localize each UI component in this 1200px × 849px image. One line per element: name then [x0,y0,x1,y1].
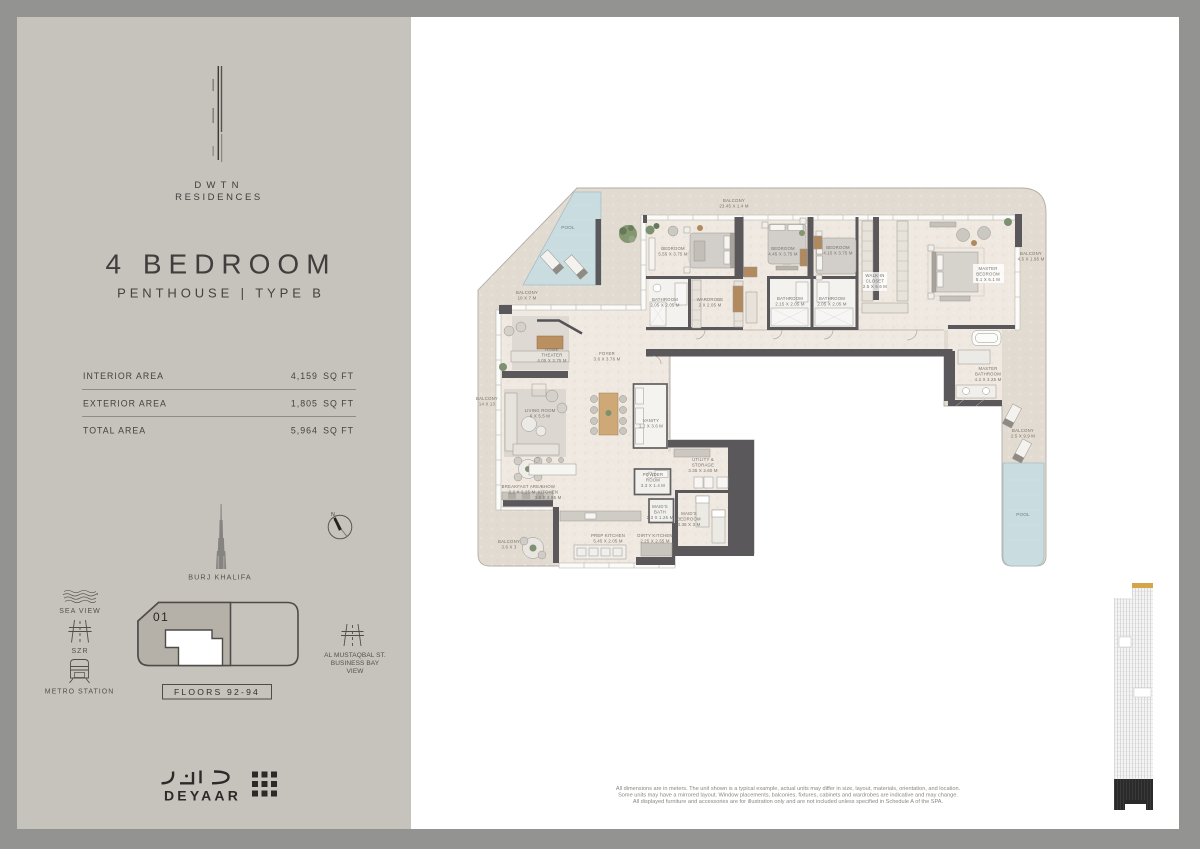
svg-text:ROOM: ROOM [646,478,660,483]
svg-text:SHOW: SHOW [541,484,556,489]
svg-text:2.5 X 6.6 M: 2.5 X 6.6 M [863,284,887,289]
svg-text:BALCONY: BALCONY [516,290,538,295]
svg-text:3.6 X 3: 3.6 X 3 [501,545,516,550]
svg-text:WALK-IN: WALK-IN [865,273,884,278]
svg-text:6 X 5.5 M: 6 X 5.5 M [530,414,550,419]
svg-text:Some units may have a mirrored: Some units may have a mirrored layout. W… [618,793,958,799]
svg-text:INTERIOR AREA: INTERIOR AREA [83,371,164,381]
svg-text:KITCHEN: KITCHEN [538,490,558,495]
svg-text:23.45 X 1.4 M: 23.45 X 1.4 M [719,204,749,209]
svg-text:PENTHOUSE | TYPE B: PENTHOUSE | TYPE B [117,286,325,301]
svg-text:FLOORS 92-94: FLOORS 92-94 [174,687,260,697]
svg-text:2.15 X 2.05 M: 2.15 X 2.05 M [775,302,805,307]
svg-text:BEDROOM: BEDROOM [677,517,701,522]
svg-text:BEDROOM: BEDROOM [661,246,685,251]
svg-text:STORAGE: STORAGE [692,463,714,468]
svg-text:POWDER: POWDER [643,472,664,477]
svg-text:5.55 X 3.75 M: 5.55 X 3.75 M [658,252,688,257]
svg-text:VIEW: VIEW [346,668,364,675]
svg-text:MAID'S: MAID'S [652,504,668,509]
svg-text:5.45 X 2.05 M: 5.45 X 2.05 M [593,539,623,544]
svg-text:BATHROOM: BATHROOM [652,297,678,302]
svg-text:BURJ KHALIFA: BURJ KHALIFA [188,573,252,582]
svg-text:4.05 X 3.75 M: 4.05 X 3.75 M [537,358,567,363]
svg-text:01: 01 [153,610,169,624]
svg-text:FOYER: FOYER [599,351,615,356]
svg-text:BEDROOM: BEDROOM [826,245,850,250]
svg-text:DEYAAR: DEYAAR [164,788,241,804]
svg-text:BALCONY: BALCONY [476,396,498,401]
svg-text:BREAKFAST AREA: BREAKFAST AREA [502,484,543,489]
svg-text:N: N [331,512,335,518]
svg-text:SZR: SZR [72,648,89,655]
svg-text:THEATER: THEATER [541,353,562,358]
svg-text:PREP KITCHEN: PREP KITCHEN [591,533,625,538]
svg-text:BEDROOM: BEDROOM [976,272,1000,277]
svg-text:2.3 X 1.25 M: 2.3 X 1.25 M [647,515,674,520]
svg-text:WARDROBE: WARDROBE [697,297,724,302]
svg-text:4.2 X 3.25 M: 4.2 X 3.25 M [975,377,1002,382]
svg-text:4.15 X 3.75 M: 4.15 X 3.75 M [823,251,853,256]
svg-text:4 BEDROOM: 4 BEDROOM [105,249,336,280]
svg-text:4.5 X 1.95 M: 4.5 X 1.95 M [1018,257,1045,262]
svg-text:1.2 X 3.6 M: 1.2 X 3.6 M [639,424,663,429]
svg-text:2.05 X 2.05 M: 2.05 X 2.05 M [817,302,847,307]
svg-text:BALCONY: BALCONY [1012,428,1034,433]
svg-text:2.5 X 9.9 M: 2.5 X 9.9 M [1011,434,1035,439]
svg-text:3.35 X 2.60 M: 3.35 X 2.60 M [688,468,718,473]
svg-text:4.45 X 3.75 M: 4.45 X 3.75 M [768,252,798,257]
svg-text:BALCONY: BALCONY [723,198,745,203]
svg-text:4,159 SQ FT: 4,159 SQ FT [291,371,354,381]
svg-text:2.2 X 2.25 M: 2.2 X 2.25 M [509,490,536,495]
svg-text:10 X 7 M: 10 X 7 M [518,296,537,301]
svg-text:BEDROOM: BEDROOM [771,246,795,251]
svg-text:AL MUSTAQBAL ST.: AL MUSTAQBAL ST. [324,652,386,659]
svg-text:BALCONY: BALCONY [498,539,520,544]
svg-text:All dimensions are in meters.: All dimensions are in meters. The unit s… [616,786,961,792]
svg-text:2.25 X 2.65 M: 2.25 X 2.65 M [640,539,670,544]
svg-text:SEA VIEW: SEA VIEW [59,608,100,615]
svg-text:1,805 SQ FT: 1,805 SQ FT [291,399,354,409]
svg-text:3.35 X 3 M: 3.35 X 3 M [678,522,701,527]
svg-text:MAID'S: MAID'S [681,511,697,516]
svg-text:VANITY: VANITY [643,418,659,423]
svg-text:BATHROOM: BATHROOM [777,296,803,301]
svg-text:DIRTY KITCHEN: DIRTY KITCHEN [637,533,672,538]
svg-text:BATHROOM: BATHROOM [819,296,845,301]
svg-text:3.3 X 1.4 M: 3.3 X 1.4 M [641,483,665,488]
svg-text:MASTER: MASTER [978,266,997,271]
svg-text:HOME: HOME [545,347,559,352]
svg-text:BATHROOM: BATHROOM [975,372,1001,377]
svg-text:2 X 2.05 M: 2 X 2.05 M [699,303,722,308]
svg-text:5.1 X 6.1 M: 5.1 X 6.1 M [976,277,1000,282]
svg-text:CLOSET: CLOSET [866,279,885,284]
svg-text:5,964 SQ FT: 5,964 SQ FT [291,426,354,436]
svg-text:2.05 X 2.05 M: 2.05 X 2.05 M [650,303,680,308]
svg-text:EXTERIOR AREA: EXTERIOR AREA [83,399,167,409]
svg-text:UTILITY &: UTILITY & [692,457,714,462]
svg-text:POOL: POOL [561,225,575,230]
svg-text:METRO STATION: METRO STATION [45,689,115,696]
svg-text:POOL: POOL [1016,512,1030,517]
svg-text:DWTN: DWTN [194,180,243,191]
svg-text:TOTAL AREA: TOTAL AREA [83,426,146,436]
svg-text:BATH: BATH [654,510,666,515]
svg-text:RESIDENCES: RESIDENCES [175,192,263,203]
svg-text:MASTER: MASTER [978,366,997,371]
svg-text:BALCONY: BALCONY [1020,251,1042,256]
svg-text:All displayed furniture and ac: All displayed furniture and accessories … [633,799,944,805]
svg-text:BUSINESS BAY: BUSINESS BAY [331,660,380,667]
svg-text:3.6 X 3.76 M: 3.6 X 3.76 M [594,357,621,362]
svg-text:14 X 13: 14 X 13 [479,402,496,407]
svg-text:LIVING ROOM: LIVING ROOM [525,408,556,413]
svg-text:3.6 X 2.85 M: 3.6 X 2.85 M [535,495,562,500]
